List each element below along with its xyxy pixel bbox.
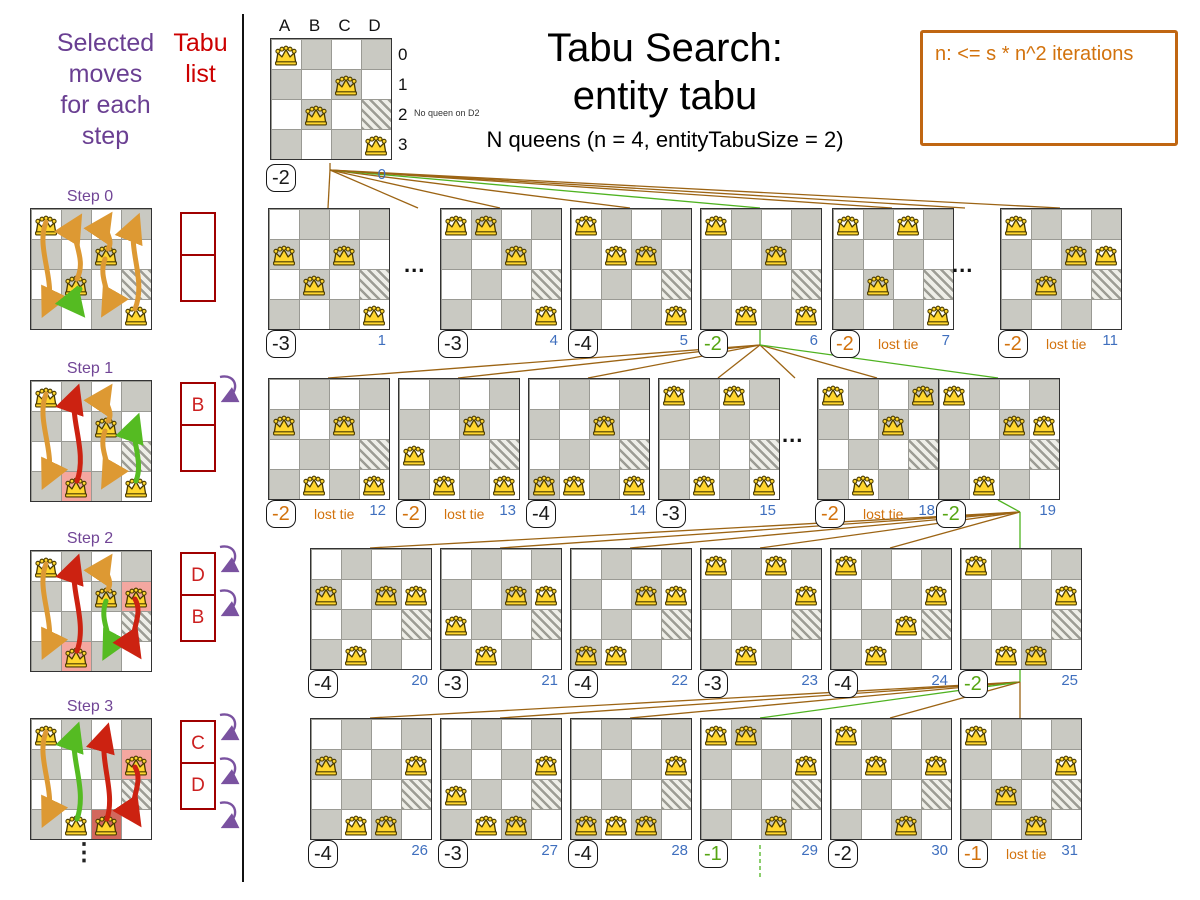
move-arrow xyxy=(133,222,139,309)
board-cell xyxy=(601,269,631,299)
queen-crown-icon xyxy=(763,813,789,836)
board-cell xyxy=(489,379,519,409)
forbidden-cell xyxy=(923,269,953,299)
board-cell xyxy=(991,549,1021,579)
queen-icon xyxy=(891,609,921,639)
board-cell xyxy=(271,69,301,99)
board-cell xyxy=(1051,719,1081,749)
rotate-arrow-icon xyxy=(216,798,246,832)
rotate-arrow-icon xyxy=(216,586,246,620)
queen-icon xyxy=(531,579,561,609)
board-cell xyxy=(731,209,761,239)
board-cell xyxy=(359,209,389,239)
move-arrow xyxy=(105,220,110,249)
move-index-label: 27 xyxy=(440,842,558,859)
move-arrow xyxy=(105,392,110,421)
queen-icon xyxy=(791,579,821,609)
rotate-arrow-icon xyxy=(216,710,246,744)
row-header: 1 xyxy=(398,75,407,95)
queen-crown-icon xyxy=(1053,753,1079,776)
forbidden-cell xyxy=(1029,439,1059,469)
move-arrows-overlay xyxy=(31,719,151,839)
board-cell xyxy=(631,749,661,779)
queen-crown-icon xyxy=(751,473,777,496)
chess-board xyxy=(658,378,780,500)
move-index-label: 1 xyxy=(268,332,386,349)
board-cell xyxy=(1061,299,1091,329)
queen-crown-icon xyxy=(503,243,529,266)
queen-crown-icon xyxy=(895,213,921,236)
board-cell xyxy=(831,809,861,839)
queen-crown-icon xyxy=(621,473,647,496)
queen-icon xyxy=(529,469,559,499)
queen-crown-icon xyxy=(573,213,599,236)
queen-crown-icon xyxy=(461,413,487,436)
queen-icon xyxy=(631,239,661,269)
tabu-list-slot: B xyxy=(180,594,216,642)
move-arrow xyxy=(134,422,138,481)
board-cell xyxy=(341,549,371,579)
queen-crown-icon xyxy=(403,753,429,776)
queen-icon xyxy=(471,209,501,239)
chess-board xyxy=(830,718,952,840)
chess-board xyxy=(570,548,692,670)
board-cell xyxy=(991,609,1021,639)
queen-icon xyxy=(269,409,299,439)
board-cell xyxy=(571,749,601,779)
board-cell xyxy=(818,409,848,439)
board-cell xyxy=(761,579,791,609)
queen-icon xyxy=(701,719,731,749)
board-cell xyxy=(1021,749,1051,779)
chess-board xyxy=(960,548,1082,670)
queen-crown-icon xyxy=(361,303,387,326)
board-cell xyxy=(833,239,863,269)
tabu-rotate-icon xyxy=(216,586,246,625)
move-arrow xyxy=(104,732,110,819)
move-arrow xyxy=(74,731,80,819)
board-cell xyxy=(999,469,1029,499)
chess-board xyxy=(270,38,392,160)
board-cell xyxy=(791,549,821,579)
forbidden-cell xyxy=(1051,779,1081,809)
queen-crown-icon xyxy=(533,303,559,326)
diagram-canvas: Selectedmovesfor eachstep Tabulist Tabu … xyxy=(0,0,1200,900)
board-cell xyxy=(701,749,731,779)
board-cell xyxy=(833,299,863,329)
board-cell xyxy=(1029,379,1059,409)
chess-board xyxy=(960,718,1082,840)
queen-icon xyxy=(969,469,999,499)
board-cell xyxy=(571,299,601,329)
forbidden-cell xyxy=(1091,269,1121,299)
forbidden-cell xyxy=(749,439,779,469)
chess-board xyxy=(700,208,822,330)
queen-icon xyxy=(441,609,471,639)
forbidden-cell xyxy=(531,269,561,299)
queen-crown-icon xyxy=(573,813,599,836)
queen-icon xyxy=(878,409,908,439)
chess-board xyxy=(700,548,822,670)
heading-line: list xyxy=(158,59,243,90)
queen-icon xyxy=(471,809,501,839)
queen-icon xyxy=(271,39,301,69)
move-arrows xyxy=(31,719,151,839)
board-cell xyxy=(659,469,689,499)
queen-crown-icon xyxy=(473,213,499,236)
board-cell xyxy=(571,579,601,609)
queen-icon xyxy=(359,469,389,499)
queen-crown-icon xyxy=(503,813,529,836)
board-cell xyxy=(848,439,878,469)
queen-crown-icon xyxy=(633,813,659,836)
move-index-label: 6 xyxy=(700,332,818,349)
move-connector xyxy=(330,170,965,208)
step-label: Step 1 xyxy=(30,360,150,378)
board-cell xyxy=(459,469,489,499)
forbidden-cell xyxy=(359,269,389,299)
queen-icon xyxy=(719,379,749,409)
queen-icon xyxy=(923,299,953,329)
queen-crown-icon xyxy=(863,643,889,666)
tabu-rotate-icon xyxy=(216,798,246,837)
queen-icon xyxy=(571,639,601,669)
queen-crown-icon xyxy=(603,643,629,666)
queen-icon xyxy=(601,239,631,269)
queen-crown-icon xyxy=(561,473,587,496)
queen-icon xyxy=(311,579,341,609)
board-cell xyxy=(341,779,371,809)
board-cell xyxy=(701,299,731,329)
queen-crown-icon xyxy=(443,613,469,636)
continuation-ellipsis: ⋮ xyxy=(72,838,96,867)
move-arrow xyxy=(43,222,50,309)
board-cell xyxy=(529,409,559,439)
queen-crown-icon xyxy=(993,643,1019,666)
queen-icon xyxy=(661,579,691,609)
board-cell xyxy=(531,549,561,579)
move-arrow xyxy=(75,289,80,310)
queen-icon xyxy=(531,299,561,329)
lost-tie-label: lost tie xyxy=(444,506,484,522)
forbidden-cell xyxy=(619,439,649,469)
queen-icon xyxy=(921,749,951,779)
move-arrow xyxy=(75,222,81,279)
heading-line: Tabu xyxy=(158,28,243,59)
board-cell xyxy=(719,409,749,439)
page-title-line1: Tabu Search: xyxy=(440,26,890,71)
queen-crown-icon xyxy=(850,473,876,496)
tabu-list-slot xyxy=(180,212,216,260)
board-cell xyxy=(429,439,459,469)
queen-crown-icon xyxy=(343,643,369,666)
tabu-list-slot: C xyxy=(180,720,216,768)
queen-crown-icon xyxy=(533,753,559,776)
queen-icon xyxy=(619,469,649,499)
board-cell xyxy=(1021,579,1051,609)
queen-icon xyxy=(1031,269,1061,299)
queen-crown-icon xyxy=(1033,273,1059,296)
column-header: D xyxy=(360,16,390,36)
forbidden-cell xyxy=(359,439,389,469)
board-cell xyxy=(589,469,619,499)
board-cell xyxy=(893,299,923,329)
queen-icon xyxy=(399,439,429,469)
queen-crown-icon xyxy=(703,723,729,746)
tabu-rotate-icon xyxy=(216,372,246,411)
queen-crown-icon xyxy=(703,553,729,576)
queen-icon xyxy=(791,299,821,329)
queen-crown-icon xyxy=(1053,583,1079,606)
queen-crown-icon xyxy=(313,753,339,776)
board-cell xyxy=(818,469,848,499)
move-arrow xyxy=(104,601,109,652)
move-arrows xyxy=(31,381,151,501)
queen-icon xyxy=(1001,209,1031,239)
rotate-arrow-icon xyxy=(216,542,246,576)
queen-crown-icon xyxy=(1093,243,1119,266)
queen-crown-icon xyxy=(533,583,559,606)
queen-crown-icon xyxy=(531,473,557,496)
board-cell xyxy=(939,409,969,439)
queen-crown-icon xyxy=(971,473,997,496)
board-cell xyxy=(1031,209,1061,239)
column-header: B xyxy=(300,16,330,36)
tabu-rotate-icon xyxy=(216,542,246,581)
board-cell xyxy=(731,779,761,809)
queen-crown-icon xyxy=(473,643,499,666)
queen-icon xyxy=(361,129,391,159)
queen-icon xyxy=(659,379,689,409)
board-cell xyxy=(689,379,719,409)
queen-icon xyxy=(731,719,761,749)
step-label: Step 0 xyxy=(30,188,150,206)
queen-crown-icon xyxy=(633,243,659,266)
queen-icon xyxy=(999,409,1029,439)
board-cell xyxy=(441,639,471,669)
board-cell xyxy=(631,299,661,329)
row-header: 0 xyxy=(398,45,407,65)
queen-crown-icon xyxy=(703,213,729,236)
forbidden-cell xyxy=(661,269,691,299)
board-cell xyxy=(969,439,999,469)
queen-crown-icon xyxy=(833,723,859,746)
board-cell xyxy=(961,579,991,609)
lost-tie-label: lost tie xyxy=(314,506,354,522)
board-cell xyxy=(269,299,299,329)
queen-icon xyxy=(441,779,471,809)
board-cell xyxy=(301,39,331,69)
queen-icon xyxy=(961,549,991,579)
omitted-moves-dots: ... xyxy=(952,252,973,278)
board-cell xyxy=(559,439,589,469)
move-arrow xyxy=(103,259,108,309)
queen-crown-icon xyxy=(1023,643,1049,666)
board-cell xyxy=(991,719,1021,749)
queen-icon xyxy=(1091,239,1121,269)
board-cell xyxy=(893,239,923,269)
board-cell xyxy=(861,609,891,639)
board-cell xyxy=(341,609,371,639)
queen-icon xyxy=(761,809,791,839)
move-index-label: 28 xyxy=(570,842,688,859)
board-cell xyxy=(969,379,999,409)
move-index-label: 25 xyxy=(960,672,1078,689)
board-cell xyxy=(601,719,631,749)
chess-board xyxy=(310,548,432,670)
board-cell xyxy=(661,209,691,239)
board-cell xyxy=(831,639,861,669)
queen-icon xyxy=(893,209,923,239)
queen-crown-icon xyxy=(443,783,469,806)
board-cell xyxy=(749,379,779,409)
queen-crown-icon xyxy=(271,243,297,266)
queen-crown-icon xyxy=(431,473,457,496)
move-arrow xyxy=(133,767,138,819)
queen-crown-icon xyxy=(833,553,859,576)
board-cell xyxy=(559,379,589,409)
queen-icon xyxy=(341,809,371,839)
queen-icon xyxy=(831,719,861,749)
move-arrow xyxy=(105,562,109,589)
queen-crown-icon xyxy=(721,383,747,406)
rotate-arrow-icon xyxy=(216,754,246,788)
board-cell xyxy=(501,749,531,779)
forbidden-cell xyxy=(661,779,691,809)
board-cell xyxy=(399,469,429,499)
queen-icon xyxy=(761,549,791,579)
board-cell xyxy=(501,299,531,329)
queen-crown-icon xyxy=(303,103,329,126)
queen-icon xyxy=(861,639,891,669)
no-queen-annotation: No queen on D2 xyxy=(414,108,480,118)
queen-icon xyxy=(991,779,1021,809)
board-cell xyxy=(961,749,991,779)
board-cell xyxy=(329,299,359,329)
queen-icon xyxy=(701,209,731,239)
board-cell xyxy=(731,549,761,579)
board-cell xyxy=(921,719,951,749)
board-cell xyxy=(689,439,719,469)
queen-crown-icon xyxy=(373,813,399,836)
chess-board xyxy=(30,208,152,330)
board-cell xyxy=(1001,239,1031,269)
chess-board xyxy=(938,378,1060,500)
lost-tie-label: lost tie xyxy=(1046,336,1086,352)
chess-board xyxy=(830,548,952,670)
board-cell xyxy=(659,409,689,439)
queen-icon xyxy=(531,749,561,779)
queen-icon xyxy=(401,749,431,779)
queen-icon xyxy=(459,409,489,439)
chess-board xyxy=(570,208,692,330)
queen-crown-icon xyxy=(793,753,819,776)
board-cell xyxy=(891,579,921,609)
move-index-label: 4 xyxy=(440,332,558,349)
board-cell xyxy=(791,209,821,239)
board-cell xyxy=(371,639,401,669)
move-index-label: 21 xyxy=(440,672,558,689)
queen-crown-icon xyxy=(1003,213,1029,236)
queen-icon xyxy=(661,299,691,329)
queen-crown-icon xyxy=(925,303,951,326)
queen-crown-icon xyxy=(993,783,1019,806)
forbidden-cell xyxy=(489,439,519,469)
queen-crown-icon xyxy=(573,643,599,666)
queen-icon xyxy=(689,469,719,499)
move-arrows xyxy=(31,209,151,329)
forbidden-cell xyxy=(401,779,431,809)
queen-crown-icon xyxy=(963,723,989,746)
tabu-list-slot: B xyxy=(180,382,216,430)
queen-icon xyxy=(908,379,938,409)
chess-board xyxy=(440,208,562,330)
board-cell xyxy=(701,579,731,609)
queen-crown-icon xyxy=(403,583,429,606)
board-cell xyxy=(331,129,361,159)
queen-crown-icon xyxy=(910,383,936,406)
queen-icon xyxy=(1061,239,1091,269)
queen-crown-icon xyxy=(663,583,689,606)
queen-crown-icon xyxy=(963,553,989,576)
queen-crown-icon xyxy=(893,813,919,836)
queen-icon xyxy=(571,209,601,239)
queen-icon xyxy=(961,719,991,749)
forbidden-cell xyxy=(921,779,951,809)
board-cell xyxy=(311,639,341,669)
forbidden-cell xyxy=(791,269,821,299)
tabu-rotate-icon xyxy=(216,754,246,793)
move-index-label: 20 xyxy=(310,672,428,689)
queen-icon xyxy=(571,809,601,839)
board-cell xyxy=(661,719,691,749)
queen-icon xyxy=(341,639,371,669)
queen-icon xyxy=(329,409,359,439)
queen-crown-icon xyxy=(893,613,919,636)
chess-board xyxy=(268,208,390,330)
forbidden-cell xyxy=(791,609,821,639)
forbidden-cell xyxy=(531,609,561,639)
move-arrow xyxy=(43,732,50,819)
chess-board xyxy=(30,380,152,502)
chess-board xyxy=(440,718,562,840)
board-cell xyxy=(329,469,359,499)
queen-icon xyxy=(818,379,848,409)
queen-crown-icon xyxy=(333,73,359,96)
tabu-list-slot xyxy=(180,254,216,302)
board-cell xyxy=(601,549,631,579)
panel-divider xyxy=(242,14,244,882)
move-index-label: 30 xyxy=(830,842,948,859)
queen-icon xyxy=(661,749,691,779)
queen-crown-icon xyxy=(1023,813,1049,836)
move-arrows-overlay xyxy=(31,209,151,329)
queen-icon xyxy=(1051,579,1081,609)
board-cell xyxy=(761,639,791,669)
move-arrows xyxy=(31,551,151,671)
queen-icon xyxy=(891,809,921,839)
board-cell xyxy=(1051,549,1081,579)
queen-icon xyxy=(1029,409,1059,439)
queen-icon xyxy=(791,749,821,779)
queen-crown-icon xyxy=(820,383,846,406)
queen-crown-icon xyxy=(473,813,499,836)
queen-crown-icon xyxy=(301,473,327,496)
queen-crown-icon xyxy=(793,303,819,326)
queen-crown-icon xyxy=(863,753,889,776)
queen-crown-icon xyxy=(835,213,861,236)
queen-crown-icon xyxy=(591,413,617,436)
